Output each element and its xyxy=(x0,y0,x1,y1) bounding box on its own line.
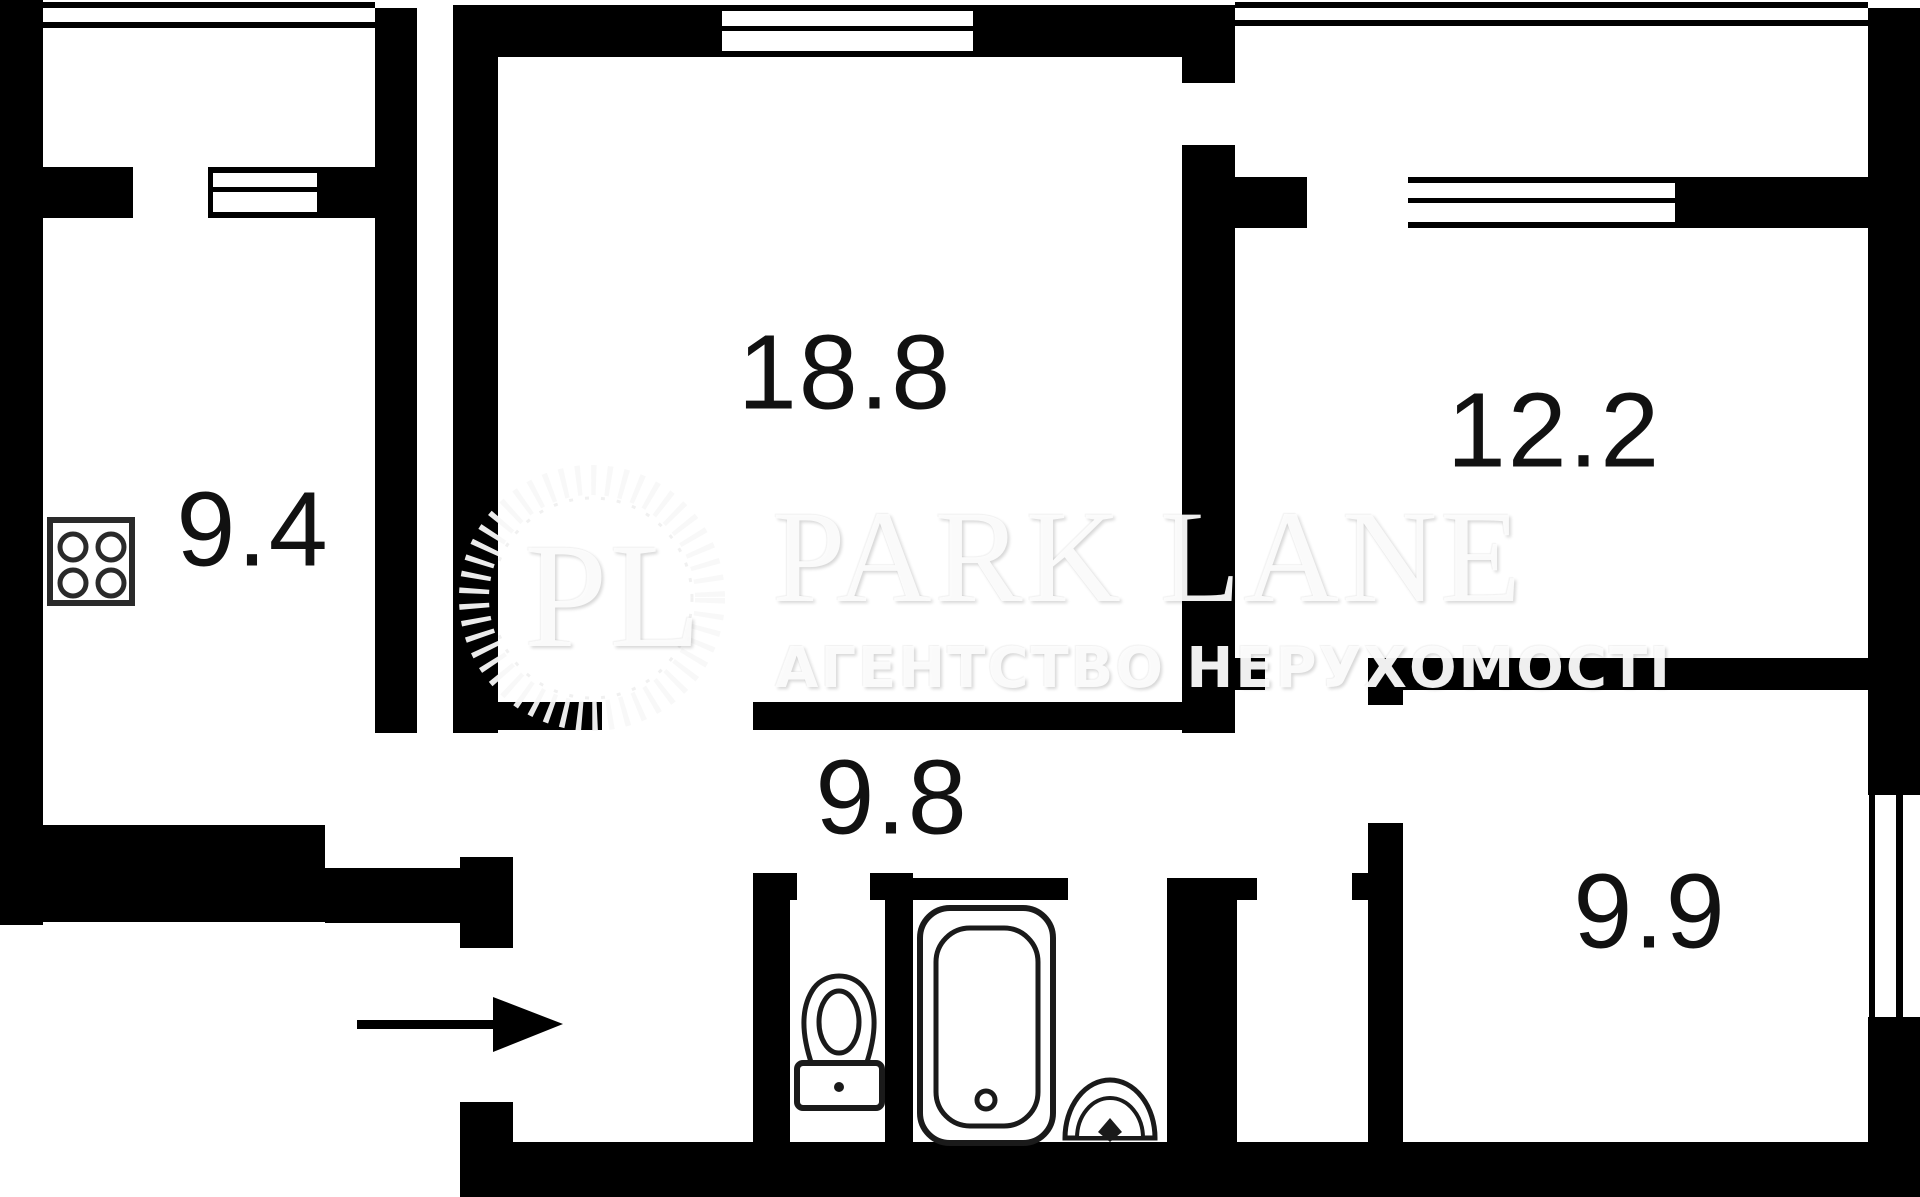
glazing-top-right-line2-icon xyxy=(1235,20,1868,26)
bedroom-99-window-icon xyxy=(1869,795,1903,1017)
wall-entry-step xyxy=(325,868,460,923)
glazing-top-right-line1-icon xyxy=(1235,2,1868,8)
wall-122-top-right xyxy=(1675,177,1868,228)
glazing-top-left-line2-icon xyxy=(38,22,375,28)
room-label-bedroom-99: 9.9 xyxy=(1573,852,1726,973)
sink-icon xyxy=(1065,1080,1155,1142)
entrance-arrow-icon xyxy=(357,997,563,1052)
wall-bathroom-right xyxy=(1167,878,1237,1145)
room-label-kitchen: 9.4 xyxy=(176,470,329,591)
room-label-bedroom-122: 12.2 xyxy=(1447,371,1661,492)
living-window-icon xyxy=(722,5,973,57)
wall-right-outer-bottom xyxy=(1868,1017,1920,1197)
wall-99-left xyxy=(1368,823,1403,1145)
wall-bathroom-top xyxy=(893,878,1068,900)
wall-wc-left xyxy=(753,873,790,1145)
wall-wc-door-stub-left xyxy=(753,873,797,900)
bedroom-122-window-icon xyxy=(1408,177,1675,228)
wall-122-bottom-right xyxy=(1368,658,1868,690)
wall-balcony-divider-left xyxy=(43,167,133,218)
wall-right-outer-top xyxy=(1868,8,1920,795)
wall-122-bottom-left xyxy=(1235,658,1265,690)
wall-living-left xyxy=(453,5,498,733)
room-label-hallway: 9.8 xyxy=(815,738,968,859)
wall-bath-top-left xyxy=(498,702,602,730)
wall-entry-riser xyxy=(460,857,513,948)
wall-living-right-stub xyxy=(1182,5,1235,83)
wall-left-outer xyxy=(0,0,43,925)
wall-kitchen-bottom xyxy=(43,825,325,922)
toilet-icon xyxy=(797,976,882,1108)
floor-plan-drawing xyxy=(0,0,1920,1197)
wall-bathroom-right-stub xyxy=(1167,878,1257,900)
bathtub-icon xyxy=(920,908,1053,1143)
wall-living-top-left xyxy=(453,5,722,57)
wall-bottom-outer xyxy=(460,1142,1920,1197)
wall-122-top-left xyxy=(1235,177,1307,228)
wall-kitchen-right xyxy=(375,8,417,733)
floor-plan: 9.4 18.8 12.2 9.8 9.9 PL PARK LANE АГЕНТ… xyxy=(0,0,1920,1197)
room-label-living: 18.8 xyxy=(738,313,952,434)
wall-99-left-stub xyxy=(1352,873,1403,900)
wall-bath-top-right xyxy=(753,702,1185,730)
wall-wc-bath-partition xyxy=(885,898,913,1145)
stove-icon xyxy=(50,520,132,603)
glazing-top-left-line1-icon xyxy=(38,2,375,8)
kitchen-window-icon xyxy=(208,167,322,218)
wall-99-top-stub xyxy=(1368,690,1403,705)
wall-living-right xyxy=(1182,145,1235,733)
